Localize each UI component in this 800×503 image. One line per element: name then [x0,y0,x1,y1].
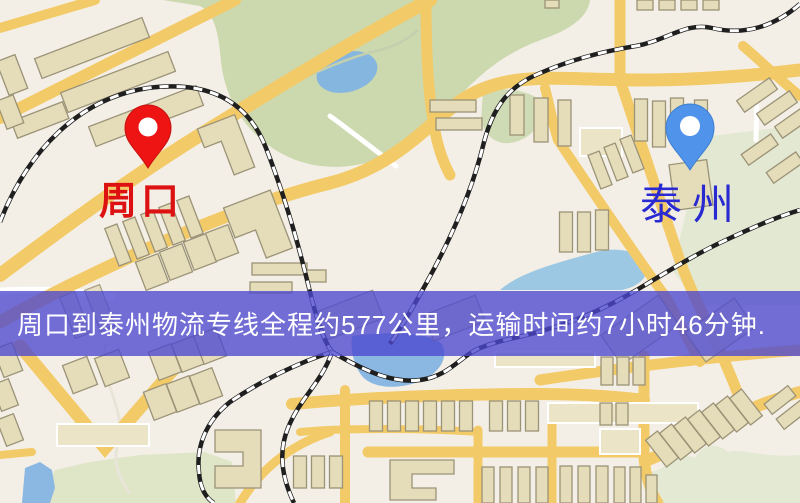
origin-label: 周口 [99,181,183,223]
map-canvas[interactable]: 周口 泰州 [0,0,800,503]
destination-label: 泰州 [640,181,744,228]
route-info-text: 周口到泰州物流专线全程约577公里，运输时间约7小时46分钟. [17,305,766,342]
route-info-banner: 周口到泰州物流专线全程约577公里，运输时间约7小时46分钟. [0,291,800,356]
red-map-pin-hole [139,118,158,137]
blue-map-pin-hole [680,116,700,136]
map-screenshot: 周口 泰州 周口到泰州物流专线全程约577公里，运输时间约7小时46分钟. [0,0,800,503]
